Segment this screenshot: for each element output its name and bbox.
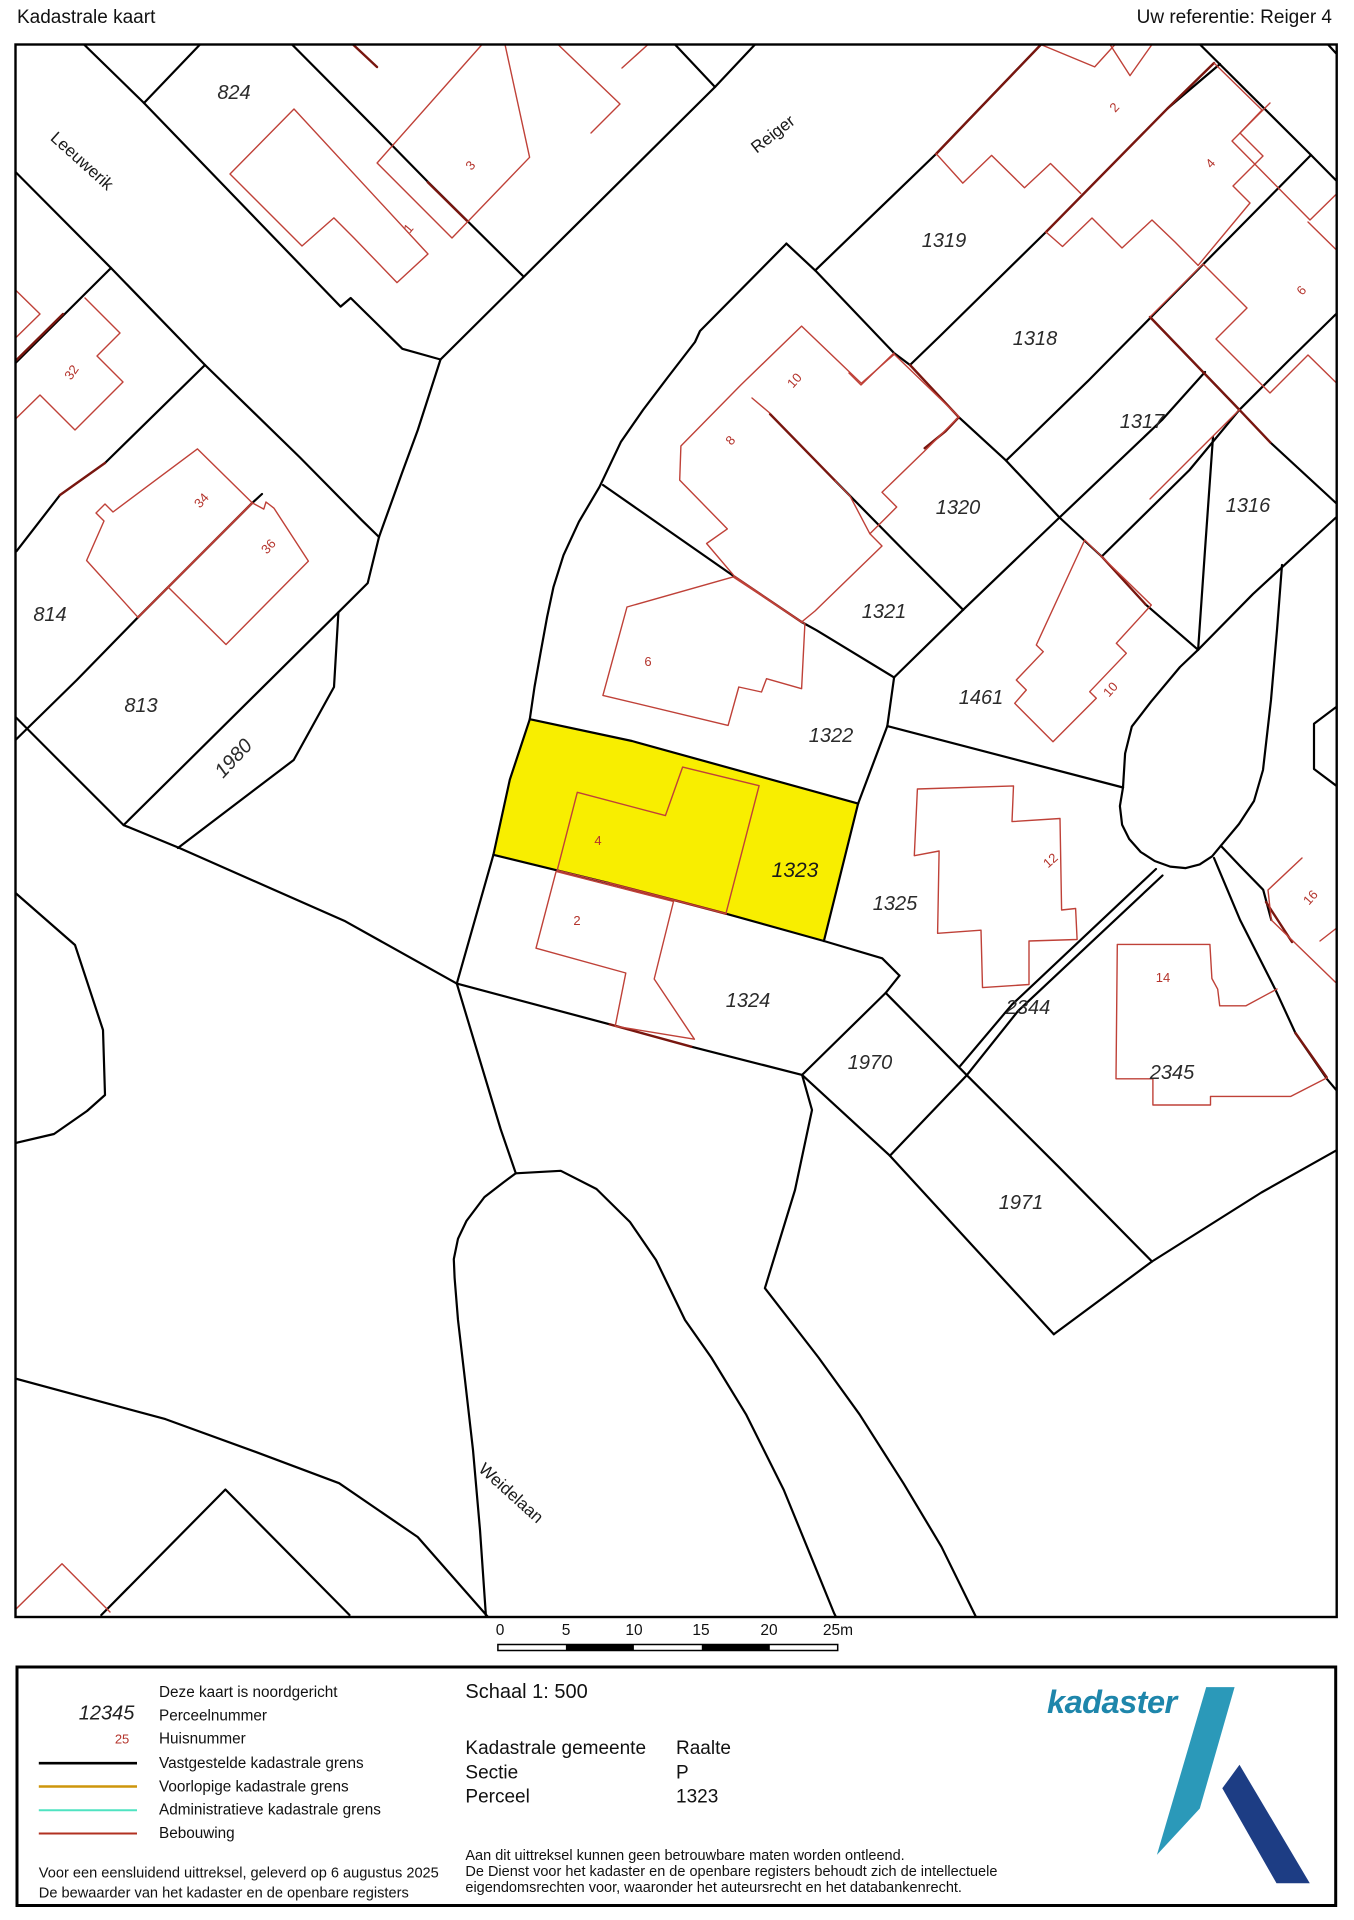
svg-text:8: 8 [722, 433, 738, 448]
svg-text:4: 4 [1202, 156, 1218, 171]
svg-text:1971: 1971 [999, 1192, 1044, 1214]
svg-text:25: 25 [115, 1732, 129, 1747]
svg-text:3: 3 [462, 158, 478, 173]
svg-text:Perceelnummer: Perceelnummer [159, 1708, 267, 1725]
svg-text:36: 36 [258, 536, 279, 557]
svg-text:1323: 1323 [772, 859, 819, 882]
svg-text:Aan dit uittreksel kunnen geen: Aan dit uittreksel kunnen geen betrouwba… [465, 1848, 904, 1864]
svg-text:Weidelaan: Weidelaan [475, 1459, 547, 1527]
svg-text:5: 5 [562, 1622, 571, 1639]
svg-text:Voor een eensluidend uittrekse: Voor een eensluidend uittreksel, gelever… [39, 1866, 439, 1882]
svg-text:1461: 1461 [959, 687, 1004, 709]
svg-text:1320: 1320 [936, 497, 981, 519]
svg-text:De Dienst voor het kadaster en: De Dienst voor het kadaster en de openba… [465, 1864, 997, 1880]
svg-text:10: 10 [784, 370, 805, 391]
svg-text:2345: 2345 [1149, 1062, 1195, 1084]
svg-text:0: 0 [496, 1622, 505, 1639]
svg-text:12: 12 [1040, 850, 1061, 871]
svg-text:Kadastrale kaart: Kadastrale kaart [17, 7, 156, 28]
svg-text:Administratieve kadastrale gre: Administratieve kadastrale grens [159, 1802, 381, 1819]
svg-text:Vastgestelde kadastrale grens: Vastgestelde kadastrale grens [159, 1755, 364, 1772]
svg-text:1322: 1322 [809, 725, 854, 747]
svg-text:1325: 1325 [873, 893, 918, 915]
svg-text:Huisnummer: Huisnummer [159, 1731, 246, 1748]
svg-text:6: 6 [1293, 283, 1309, 298]
svg-text:2344: 2344 [1005, 997, 1051, 1019]
svg-text:Perceel: Perceel [465, 1787, 529, 1808]
svg-text:6: 6 [644, 654, 651, 669]
svg-text:814: 814 [33, 604, 66, 626]
svg-text:1324: 1324 [726, 990, 771, 1012]
svg-text:34: 34 [191, 490, 212, 511]
svg-text:Kadastrale gemeente: Kadastrale gemeente [465, 1738, 646, 1759]
svg-text:1318: 1318 [1013, 328, 1058, 350]
svg-text:824: 824 [217, 82, 250, 104]
svg-text:kadaster: kadaster [1047, 1684, 1180, 1720]
svg-text:Reiger: Reiger [747, 111, 798, 157]
svg-text:2: 2 [1106, 100, 1122, 115]
svg-text:De bewaarder van het kadaster: De bewaarder van het kadaster en de open… [39, 1886, 409, 1902]
svg-text:P: P [676, 1762, 689, 1783]
svg-text:20: 20 [760, 1622, 778, 1639]
svg-text:10: 10 [625, 1622, 643, 1639]
svg-text:Schaal 1: 500: Schaal 1: 500 [465, 1681, 587, 1703]
svg-text:2: 2 [573, 913, 580, 928]
svg-text:1970: 1970 [848, 1052, 893, 1074]
svg-text:Raalte: Raalte [676, 1738, 731, 1759]
svg-text:1319: 1319 [922, 230, 967, 252]
svg-text:1316: 1316 [1226, 495, 1271, 517]
svg-text:eigendomsrechten voor, waarond: eigendomsrechten voor, waaronder het aut… [465, 1880, 962, 1896]
svg-text:4: 4 [594, 833, 601, 848]
svg-text:813: 813 [124, 695, 157, 717]
svg-text:16: 16 [1300, 887, 1321, 908]
svg-text:32: 32 [61, 362, 82, 382]
svg-text:Voorlopige kadastrale grens: Voorlopige kadastrale grens [159, 1778, 349, 1795]
svg-text:1: 1 [400, 221, 416, 236]
svg-text:Deze kaart is noordgericht: Deze kaart is noordgericht [159, 1684, 338, 1701]
svg-text:10: 10 [1100, 679, 1121, 700]
svg-text:Leeuwerik: Leeuwerik [47, 128, 118, 194]
svg-text:Uw referentie: Reiger 4: Uw referentie: Reiger 4 [1137, 7, 1333, 28]
svg-text:12345: 12345 [79, 1702, 135, 1724]
svg-text:Sectie: Sectie [465, 1762, 518, 1783]
svg-text:1317: 1317 [1120, 411, 1165, 433]
svg-text:Bebouwing: Bebouwing [159, 1825, 235, 1842]
svg-text:15: 15 [692, 1622, 709, 1639]
svg-text:1980: 1980 [211, 735, 257, 783]
svg-text:1323: 1323 [676, 1787, 718, 1808]
svg-text:1321: 1321 [862, 601, 907, 623]
svg-text:14: 14 [1156, 970, 1170, 985]
svg-text:25m: 25m [823, 1622, 853, 1639]
